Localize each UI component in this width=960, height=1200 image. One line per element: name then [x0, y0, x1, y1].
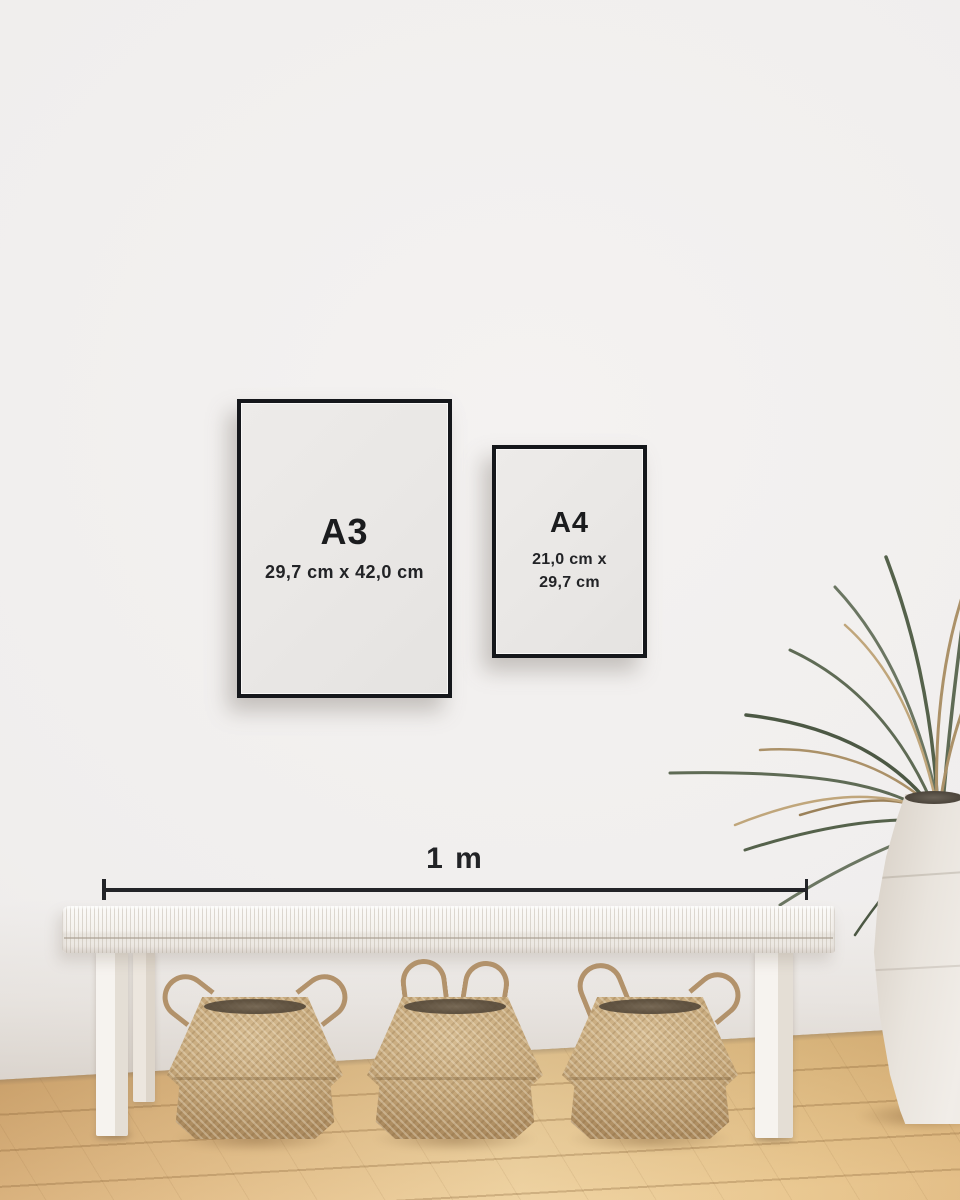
basket-body — [562, 997, 738, 1139]
ruler-line — [102, 888, 808, 892]
basket-opening — [204, 999, 306, 1014]
frame-a3-dimensions: 29,7 cm x 42,0 cm — [265, 562, 424, 583]
basket-opening — [599, 999, 701, 1014]
basket-body — [367, 997, 543, 1139]
frame-a4-dimensions-line1: 21,0 cm x — [532, 548, 607, 571]
bench-leg-front-left — [96, 950, 128, 1136]
seagrass-basket-middle — [367, 997, 543, 1139]
frame-a3: A3 29,7 cm x 42,0 cm — [237, 399, 452, 698]
frame-a3-paper: A3 29,7 cm x 42,0 cm — [241, 403, 448, 694]
ruler-tick-left — [102, 879, 106, 900]
bench-seat — [62, 906, 835, 953]
frame-a4: A4 21,0 cm x 29,7 cm — [492, 445, 647, 658]
frame-a4-size-label: A4 — [550, 509, 589, 538]
frame-a3-size-label: A3 — [320, 514, 368, 550]
seagrass-basket-right — [562, 997, 738, 1139]
frame-a4-dimensions: 21,0 cm x 29,7 cm — [532, 548, 607, 594]
basket-opening — [404, 999, 506, 1014]
bench-leg-back-left — [133, 950, 155, 1102]
frame-a4-paper: A4 21,0 cm x 29,7 cm — [496, 449, 643, 654]
ruler-label: 1 m — [102, 842, 808, 876]
ruler-tick-right — [805, 879, 809, 900]
room-scene: A3 29,7 cm x 42,0 cm A4 21,0 cm x 29,7 c… — [0, 0, 960, 1200]
vase-mouth — [905, 791, 960, 804]
measurement-ruler: 1 m — [102, 888, 808, 892]
frame-a4-dimensions-line2: 29,7 cm — [532, 571, 607, 594]
basket-body — [167, 997, 343, 1139]
bench-leg-front-right — [755, 950, 793, 1138]
seagrass-basket-left — [167, 997, 343, 1139]
